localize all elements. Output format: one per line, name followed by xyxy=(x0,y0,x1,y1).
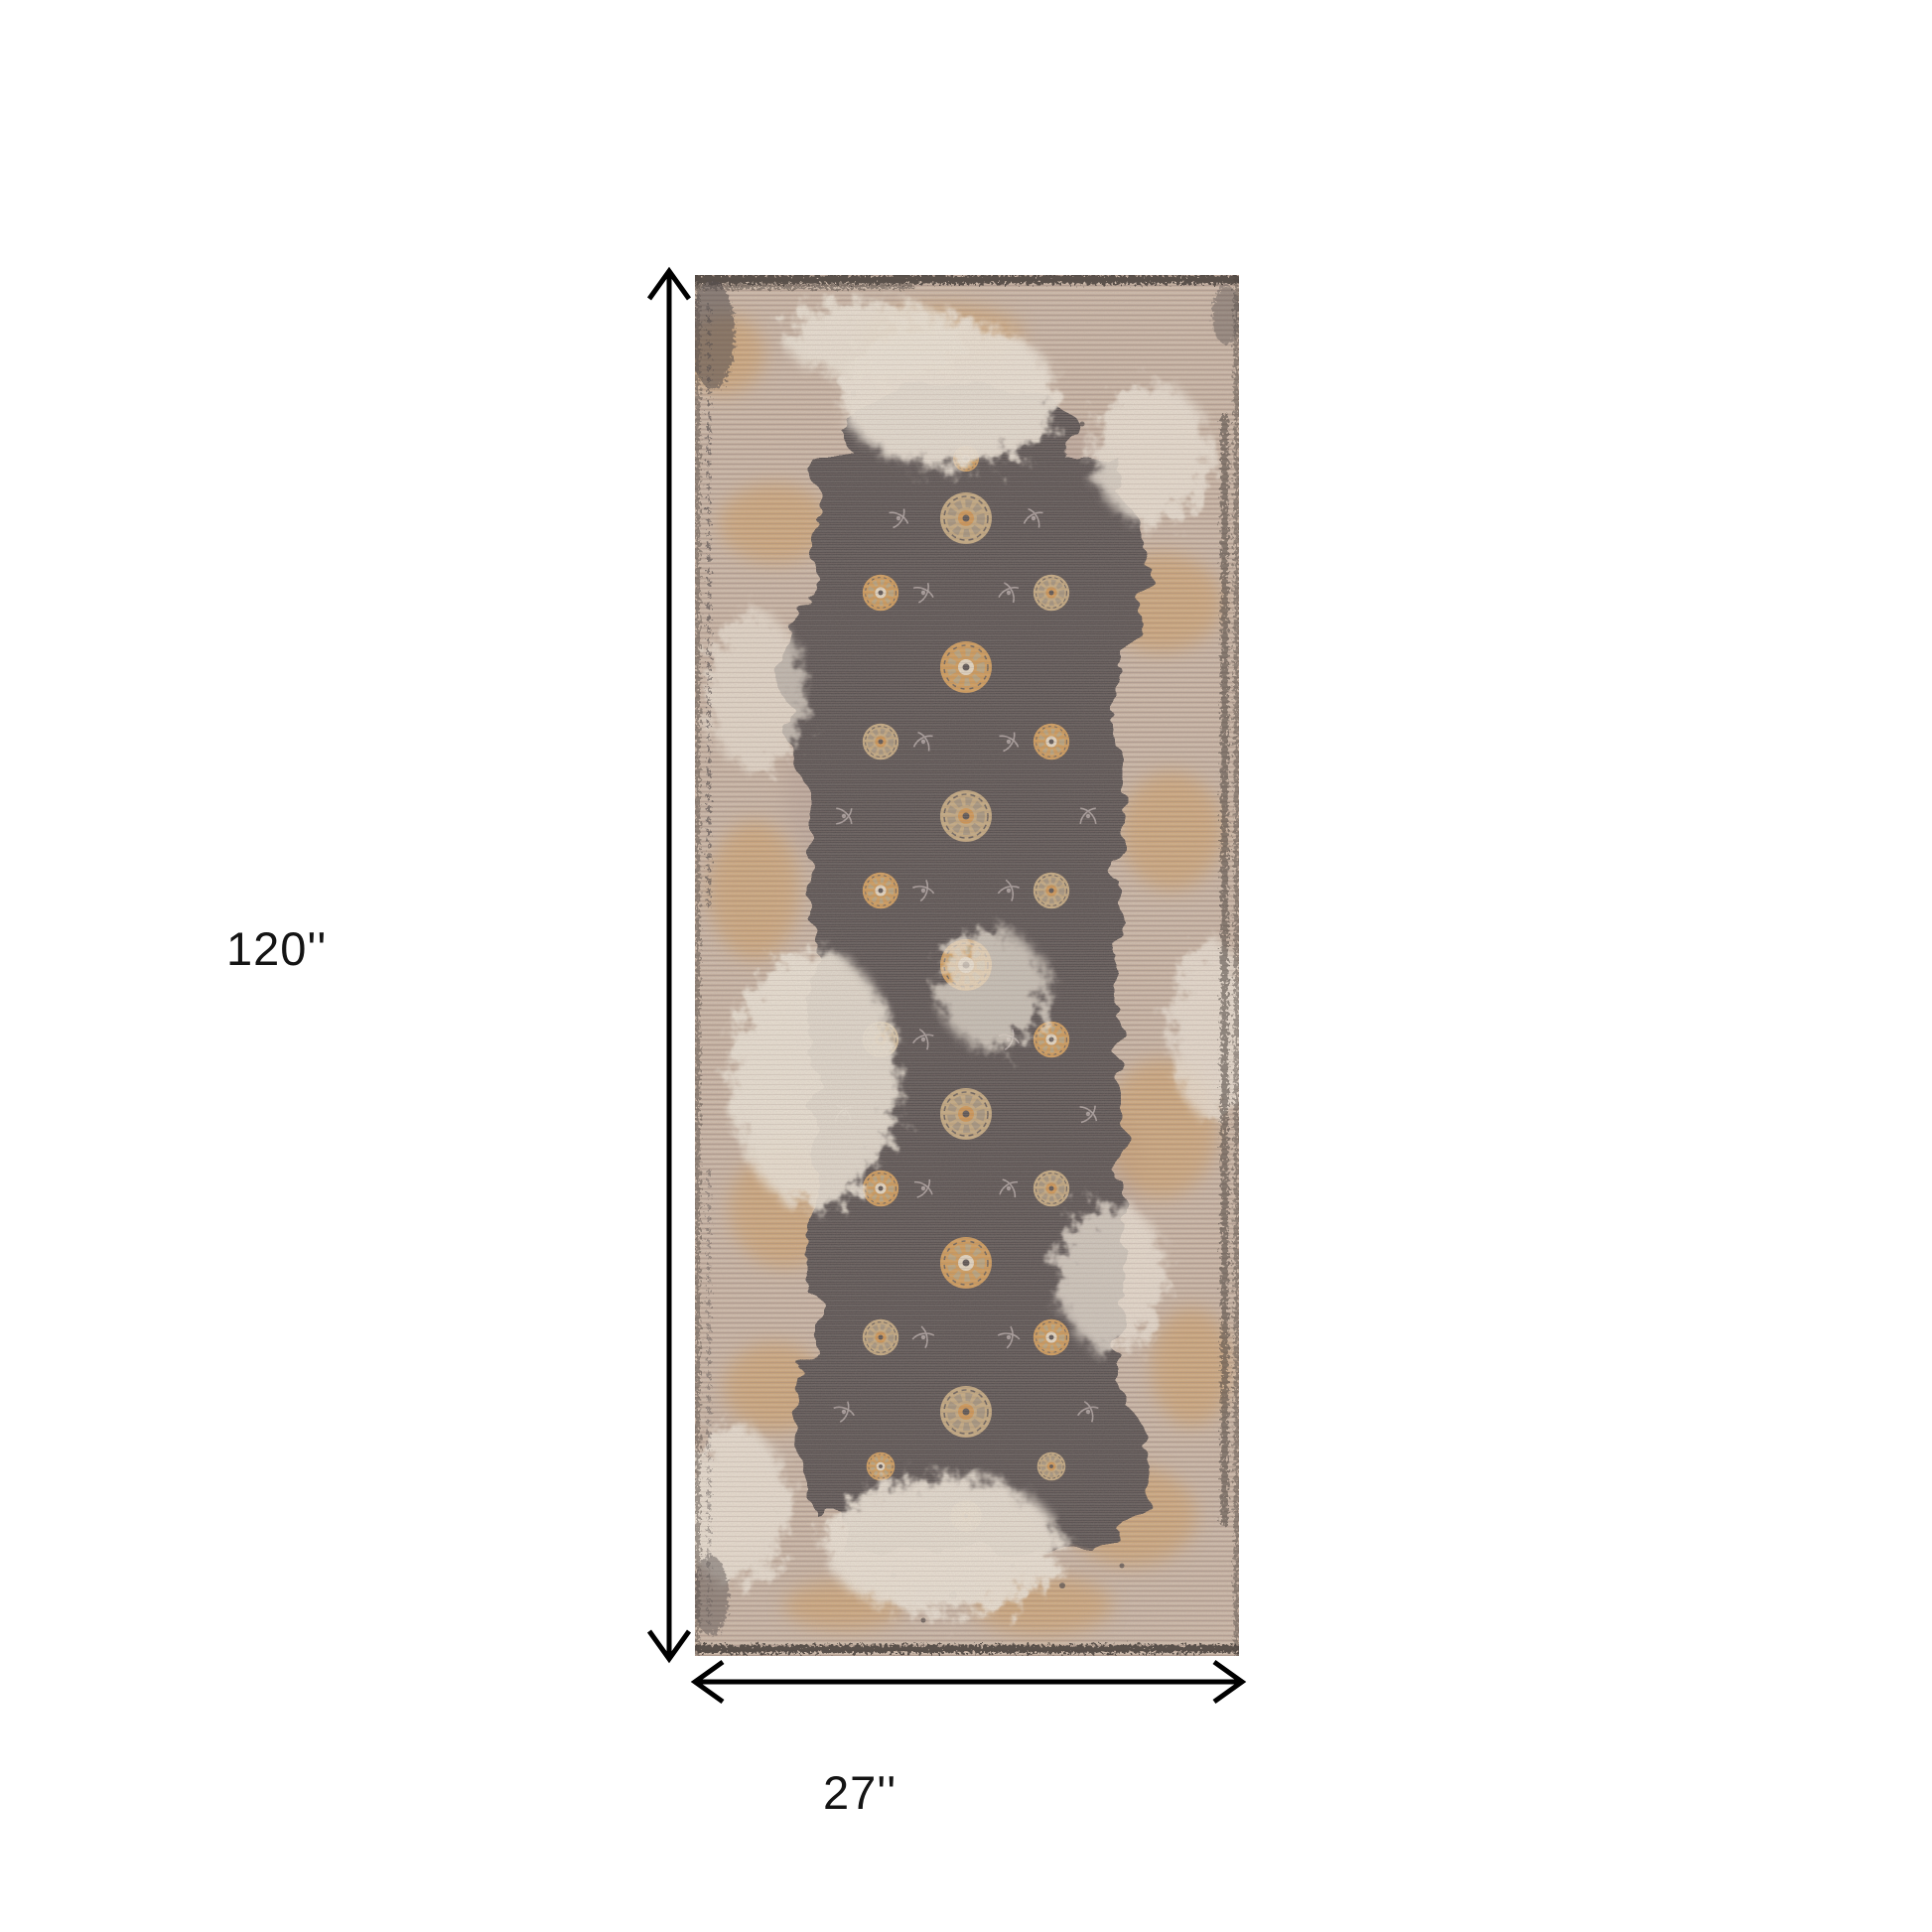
product-dimension-canvas: 120'' 27'' xyxy=(0,0,1932,1932)
vertical-dimension-arrow-icon xyxy=(640,256,700,1674)
rug-product-image xyxy=(695,275,1239,1656)
horizontal-dimension-arrow-icon xyxy=(683,1652,1257,1712)
height-dimension-label: 120'' xyxy=(226,925,327,972)
width-dimension-label: 27'' xyxy=(823,1769,897,1816)
